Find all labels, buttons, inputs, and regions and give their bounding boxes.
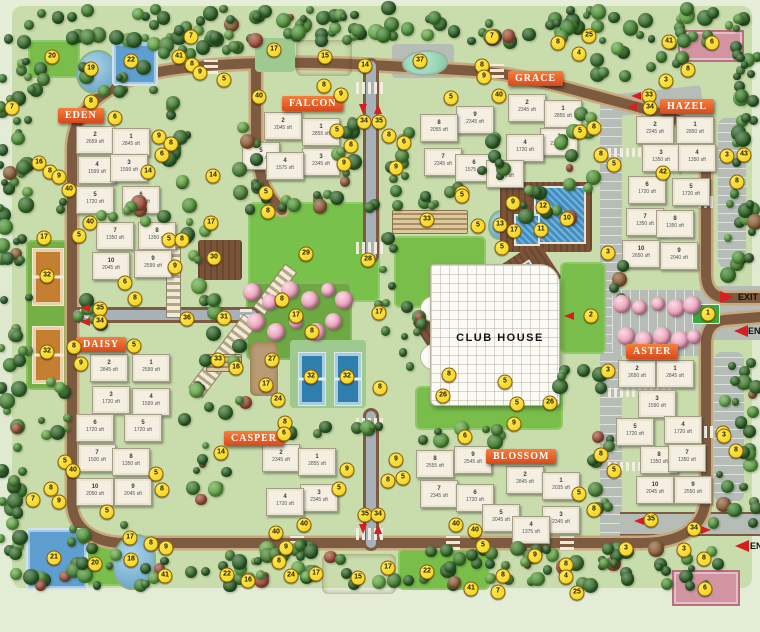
tree [160, 557, 168, 565]
direction-arrow-down [359, 524, 367, 534]
building-unit: 12850 sft [676, 116, 714, 144]
unit-area: 1350 sft [679, 157, 715, 164]
unit-area: 1720 sft [507, 147, 543, 154]
legend-marker: 26 [436, 389, 451, 404]
building-unit: 41720 sft [506, 134, 544, 162]
legend-marker: 6 [458, 430, 473, 445]
legend-marker: 12 [536, 200, 551, 215]
tree [685, 581, 695, 591]
unit-number: 1 [543, 477, 579, 485]
tree [610, 559, 618, 567]
building-unit: 102050 sft [76, 478, 114, 506]
building-unit: 92599 sft [134, 250, 172, 278]
unit-area: 2650 sft [619, 373, 655, 380]
legend-marker: 17 [37, 231, 52, 246]
legend-marker: 9 [193, 66, 208, 81]
legend-marker: 43 [737, 148, 752, 163]
tree [656, 51, 668, 63]
unit-area: 1720 sft [77, 427, 113, 434]
legend-marker: 5 [444, 91, 459, 106]
tree [109, 30, 124, 45]
tree [25, 294, 33, 302]
tree [602, 543, 614, 555]
direction-arrow-up [374, 524, 382, 534]
legend-marker: 41 [158, 569, 173, 584]
legend-marker: 31 [217, 311, 232, 326]
tree [287, 198, 301, 212]
tree [196, 16, 205, 25]
legend-marker: 8 [317, 79, 332, 94]
unit-area: 1350 sft [643, 157, 679, 164]
legend-marker: 8 [594, 448, 609, 463]
legend-marker: 17 [381, 561, 396, 576]
building-unit: 92045 sft [114, 478, 152, 506]
unit-number: 2 [509, 99, 545, 107]
crosswalk [490, 64, 504, 78]
unit-area: 1720 sft [77, 199, 113, 206]
building-unit: 82055 sft [420, 114, 458, 142]
tree [477, 166, 486, 175]
cluster-banner-hazel: HAZEL [660, 99, 714, 114]
legend-marker: 6 [277, 427, 292, 442]
legend-marker: 4 [559, 570, 574, 585]
legend-marker: 17 [507, 224, 522, 239]
legend-marker: 8 [587, 503, 602, 518]
tree [1, 179, 8, 186]
legend-marker: 5 [498, 375, 513, 390]
legend-marker: 5 [607, 464, 622, 479]
unit-number: 2 [637, 121, 673, 129]
tree [209, 31, 220, 42]
legend-marker: 9 [340, 463, 355, 478]
tree [617, 260, 629, 272]
unit-number: 4 [513, 521, 549, 529]
unit-number: 1 [113, 133, 149, 141]
tree [749, 380, 760, 394]
tree [245, 204, 255, 214]
unit-number: 4 [679, 149, 715, 157]
legend-marker: 14 [206, 169, 221, 184]
legend-marker: 5 [572, 487, 587, 502]
tree [80, 29, 96, 45]
unit-number: 5 [125, 419, 161, 427]
tree [208, 481, 223, 496]
building-unit: 12845 sft [656, 360, 694, 388]
legend-marker: 17 [259, 378, 274, 393]
unit-number: 3 [639, 395, 675, 403]
legend-marker: 40 [62, 183, 77, 198]
unit-area: 2845 sft [507, 479, 543, 486]
tree [342, 35, 352, 45]
legend-marker: 8 [496, 569, 511, 584]
tree [296, 552, 305, 561]
legend-marker: 25 [570, 586, 585, 601]
building-unit: 41599 sft [132, 388, 170, 416]
tree [11, 330, 23, 342]
tree [746, 358, 756, 368]
tree [482, 426, 489, 433]
tree [728, 362, 736, 370]
unit-area: 1350 sft [97, 235, 133, 242]
unit-area: 2659 sft [77, 139, 113, 146]
building-unit: 72345 sft [420, 480, 458, 508]
legend-marker: 8 [144, 537, 159, 552]
legend-marker: 35 [644, 513, 659, 528]
legend-marker: 34 [93, 315, 108, 330]
legend-marker: 3 [619, 542, 634, 557]
tree [732, 251, 745, 264]
legend-marker: 34 [687, 522, 702, 537]
tree [372, 575, 386, 589]
building-unit: 12855 sft [298, 448, 336, 476]
legend-marker: 34 [643, 101, 658, 116]
club-house-label: CLUB HOUSE [440, 332, 560, 344]
legend-marker: 32 [40, 345, 55, 360]
unit-area: 1720 sft [629, 189, 665, 196]
legend-marker: 1 [701, 307, 716, 322]
building-unit: 51720 sft [616, 418, 654, 446]
tree [518, 209, 533, 224]
tree [178, 413, 191, 426]
tree [655, 563, 663, 571]
tree [388, 282, 396, 290]
unit-area: 1720 sft [673, 191, 709, 198]
tree [252, 12, 262, 22]
unit-area: 1720 sft [267, 501, 303, 508]
tree [232, 554, 247, 569]
legend-marker: 34 [357, 115, 372, 130]
tree [379, 266, 386, 273]
unit-number: 10 [77, 483, 113, 491]
direction-arrow-left [627, 103, 637, 111]
unit-area: 2345 sft [301, 497, 337, 504]
legend-marker: 14 [214, 446, 229, 461]
building-unit: 22659 sft [76, 126, 114, 154]
gate-label-entry: ENTRY [750, 541, 760, 551]
unit-number: 5 [673, 183, 709, 191]
unit-number: 1 [133, 359, 169, 367]
unit-number: 5 [617, 423, 653, 431]
tree [741, 61, 748, 68]
legend-marker: 41 [662, 35, 677, 50]
legend-marker: 5 [573, 125, 588, 140]
tree [12, 530, 28, 546]
tree [13, 443, 22, 452]
crosswalk [560, 536, 574, 550]
tree [448, 576, 461, 589]
legend-marker: 42 [656, 166, 671, 181]
unit-number: 1 [657, 365, 693, 373]
legend-marker: 8 [175, 233, 190, 248]
unit-number: 8 [657, 215, 693, 223]
tree [350, 11, 358, 19]
legend-marker: 20 [88, 557, 103, 572]
unit-number: 6 [457, 489, 493, 497]
unit-number: 10 [623, 245, 659, 253]
direction-arrow-right [701, 526, 711, 534]
tree [304, 544, 318, 558]
tree [491, 424, 503, 436]
tree [1, 252, 14, 265]
legend-marker: 13 [493, 218, 508, 233]
unit-number: 9 [661, 247, 697, 255]
tree [81, 4, 94, 17]
tree [598, 67, 609, 78]
tree [27, 85, 36, 94]
unit-area: 2345 sft [509, 107, 545, 114]
legend-marker: 24 [284, 569, 299, 584]
unit-number: 4 [507, 139, 543, 147]
legend-marker: 17 [204, 216, 219, 231]
unit-area: 2345 sft [263, 457, 299, 464]
tree [608, 12, 620, 24]
direction-arrow-left [80, 304, 90, 312]
legend-marker: 40 [492, 89, 507, 104]
unit-number: 1 [299, 453, 335, 461]
tree [113, 85, 126, 98]
tree [748, 518, 758, 528]
legend-marker: 8 [261, 205, 276, 220]
tree [22, 58, 30, 66]
tree [747, 95, 759, 107]
legend-marker: 33 [420, 213, 435, 228]
legend-marker: 20 [45, 50, 60, 65]
tree [603, 502, 613, 512]
legend-marker: 5 [495, 241, 510, 256]
cherry-blossom-tree [243, 283, 261, 301]
tree [727, 503, 742, 518]
tree [609, 283, 619, 293]
building-unit: 71350 sft [668, 444, 706, 472]
tree [4, 34, 13, 43]
tree [399, 348, 408, 357]
direction-arrow-left [564, 312, 574, 320]
cherry-blossom-tree [335, 291, 352, 308]
tree [747, 406, 759, 418]
building-unit: 51720 sft [124, 414, 162, 442]
tree [413, 328, 421, 336]
legend-marker: 5 [127, 339, 142, 354]
legend-marker: 9 [528, 549, 543, 564]
tree [739, 483, 747, 491]
tree [186, 481, 200, 495]
tree [403, 575, 414, 586]
tree [340, 13, 348, 21]
legend-marker: 5 [476, 539, 491, 554]
tree [11, 132, 25, 146]
building-unit: 51720 sft [672, 178, 710, 206]
legend-marker: 7 [26, 493, 41, 508]
tree [524, 185, 534, 195]
tree [428, 202, 436, 210]
masterplan-canvas: CLUB HOUSE 22659 sft12845 sft41599 sft31… [0, 0, 760, 632]
legend-marker: 8 [305, 325, 320, 340]
unit-area: 1350 sft [657, 223, 693, 230]
gate-label-exit: EXIT [738, 292, 758, 302]
tree [746, 200, 754, 208]
building-unit: 12845 sft [112, 128, 150, 156]
unit-number: 9 [135, 255, 171, 263]
tree [440, 544, 453, 557]
tree [76, 528, 91, 543]
legend-marker: 5 [72, 229, 87, 244]
tree [554, 136, 568, 150]
building-unit: 71500 sft [78, 444, 116, 472]
legend-marker: 40 [83, 216, 98, 231]
tree [735, 416, 747, 428]
legend-marker: 32 [340, 370, 355, 385]
cherry-blossom-tree [247, 313, 265, 331]
tree [636, 31, 643, 38]
tree [248, 33, 263, 48]
tree [542, 545, 551, 554]
legend-marker: 3 [717, 429, 732, 444]
legend-marker: 4 [572, 47, 587, 62]
tree [750, 502, 760, 514]
legend-marker: 5 [332, 482, 347, 497]
tree [313, 191, 321, 199]
legend-marker: 34 [371, 508, 386, 523]
legend-marker: 7 [184, 30, 199, 45]
building-unit: 92550 sft [674, 476, 712, 504]
tree [24, 116, 32, 124]
legend-marker: 40 [66, 464, 81, 479]
tree [566, 164, 573, 171]
tree [485, 19, 494, 28]
legend-marker: 24 [271, 393, 286, 408]
legend-marker: 8 [275, 293, 290, 308]
tree [38, 417, 46, 425]
cluster-banner-casper: CASPER [224, 431, 284, 446]
tree [96, 210, 107, 221]
legend-marker: 9 [389, 453, 404, 468]
unit-number: 4 [133, 393, 169, 401]
tree [646, 62, 656, 72]
legend-marker: 8 [344, 139, 359, 154]
unit-number: 5 [77, 191, 113, 199]
tree [725, 21, 733, 29]
tree [37, 73, 50, 86]
legend-marker: 3 [677, 543, 692, 558]
legend-marker: 3 [720, 149, 735, 164]
tree [648, 541, 664, 557]
cherry-blossom-tree [683, 296, 701, 314]
tree [599, 37, 606, 44]
tree [294, 540, 305, 551]
legend-marker: 7 [491, 585, 506, 600]
unit-area: 2045 sft [637, 489, 673, 496]
tree [552, 379, 567, 394]
tree [191, 278, 207, 294]
tree [126, 32, 142, 48]
unit-area: 1375 sft [513, 529, 549, 536]
building-unit: 31720 sft [92, 386, 130, 414]
direction-arrow-up [374, 104, 382, 114]
legend-marker: 6 [705, 36, 720, 51]
building-unit: 41350 sft [678, 144, 716, 172]
legend-marker: 8 [128, 292, 143, 307]
tree [502, 29, 515, 42]
building-unit: 81350 sft [656, 210, 694, 238]
building-unit: 22650 sft [618, 360, 656, 388]
tree [735, 89, 748, 102]
legend-marker: 27 [265, 353, 280, 368]
tree [86, 543, 98, 555]
legend-marker: 8 [373, 381, 388, 396]
building-unit: 22245 sft [636, 116, 674, 144]
legend-marker: 32 [304, 370, 319, 385]
cherry-blossom-tree [653, 327, 671, 345]
tree [256, 570, 265, 579]
legend-marker: 16 [241, 574, 256, 589]
unit-area: 1720 sft [93, 399, 129, 406]
legend-marker: 19 [84, 62, 99, 77]
unit-area: 2345 sft [457, 119, 493, 126]
building-unit: 22345 sft [508, 94, 546, 122]
legend-marker: 29 [299, 247, 314, 262]
tree [254, 557, 262, 565]
unit-number: 3 [93, 391, 129, 399]
legend-marker: 7 [485, 30, 500, 45]
unit-area: 2845 sft [91, 367, 127, 374]
legend-marker: 11 [534, 223, 549, 238]
legend-marker: 2 [584, 309, 599, 324]
unit-area: 2045 sft [93, 265, 129, 272]
legend-marker: 40 [269, 526, 284, 541]
legend-marker: 8 [381, 474, 396, 489]
tree [522, 28, 535, 41]
building-unit: 22345 sft [262, 444, 300, 472]
unit-number: 3 [643, 149, 679, 157]
unit-area: 2845 sft [657, 373, 693, 380]
unit-number: 2 [265, 117, 301, 125]
unit-area: 2050 sft [77, 491, 113, 498]
legend-marker: 16 [229, 361, 244, 376]
legend-marker: 8 [272, 555, 287, 570]
tree [485, 559, 495, 569]
tree [495, 159, 503, 167]
unit-number: 7 [79, 449, 115, 457]
legend-marker: 17 [123, 531, 138, 546]
tree [595, 382, 607, 394]
tree [401, 22, 414, 35]
tree [235, 396, 244, 405]
legend-marker: 5 [455, 189, 470, 204]
tree [376, 27, 391, 42]
legend-marker: 17 [309, 567, 324, 582]
legend-marker: 17 [289, 309, 304, 324]
unit-area: 2555 sft [417, 463, 453, 470]
unit-area: 1720 sft [665, 429, 701, 436]
tree [219, 5, 228, 14]
tree [566, 6, 575, 15]
tree [591, 4, 607, 20]
unit-number: 7 [97, 227, 133, 235]
tree [237, 122, 249, 134]
tree [315, 35, 328, 48]
building-unit: 61720 sft [76, 414, 114, 442]
tree [157, 210, 171, 224]
tree [313, 199, 327, 213]
tree [10, 568, 22, 580]
building-unit: 51720 sft [76, 186, 114, 214]
building-unit: 41720 sft [266, 488, 304, 516]
tree [176, 175, 188, 187]
unit-number: 8 [113, 453, 149, 461]
tree [18, 197, 34, 213]
legend-marker: 7 [5, 101, 20, 116]
legend-marker: 14 [141, 165, 156, 180]
